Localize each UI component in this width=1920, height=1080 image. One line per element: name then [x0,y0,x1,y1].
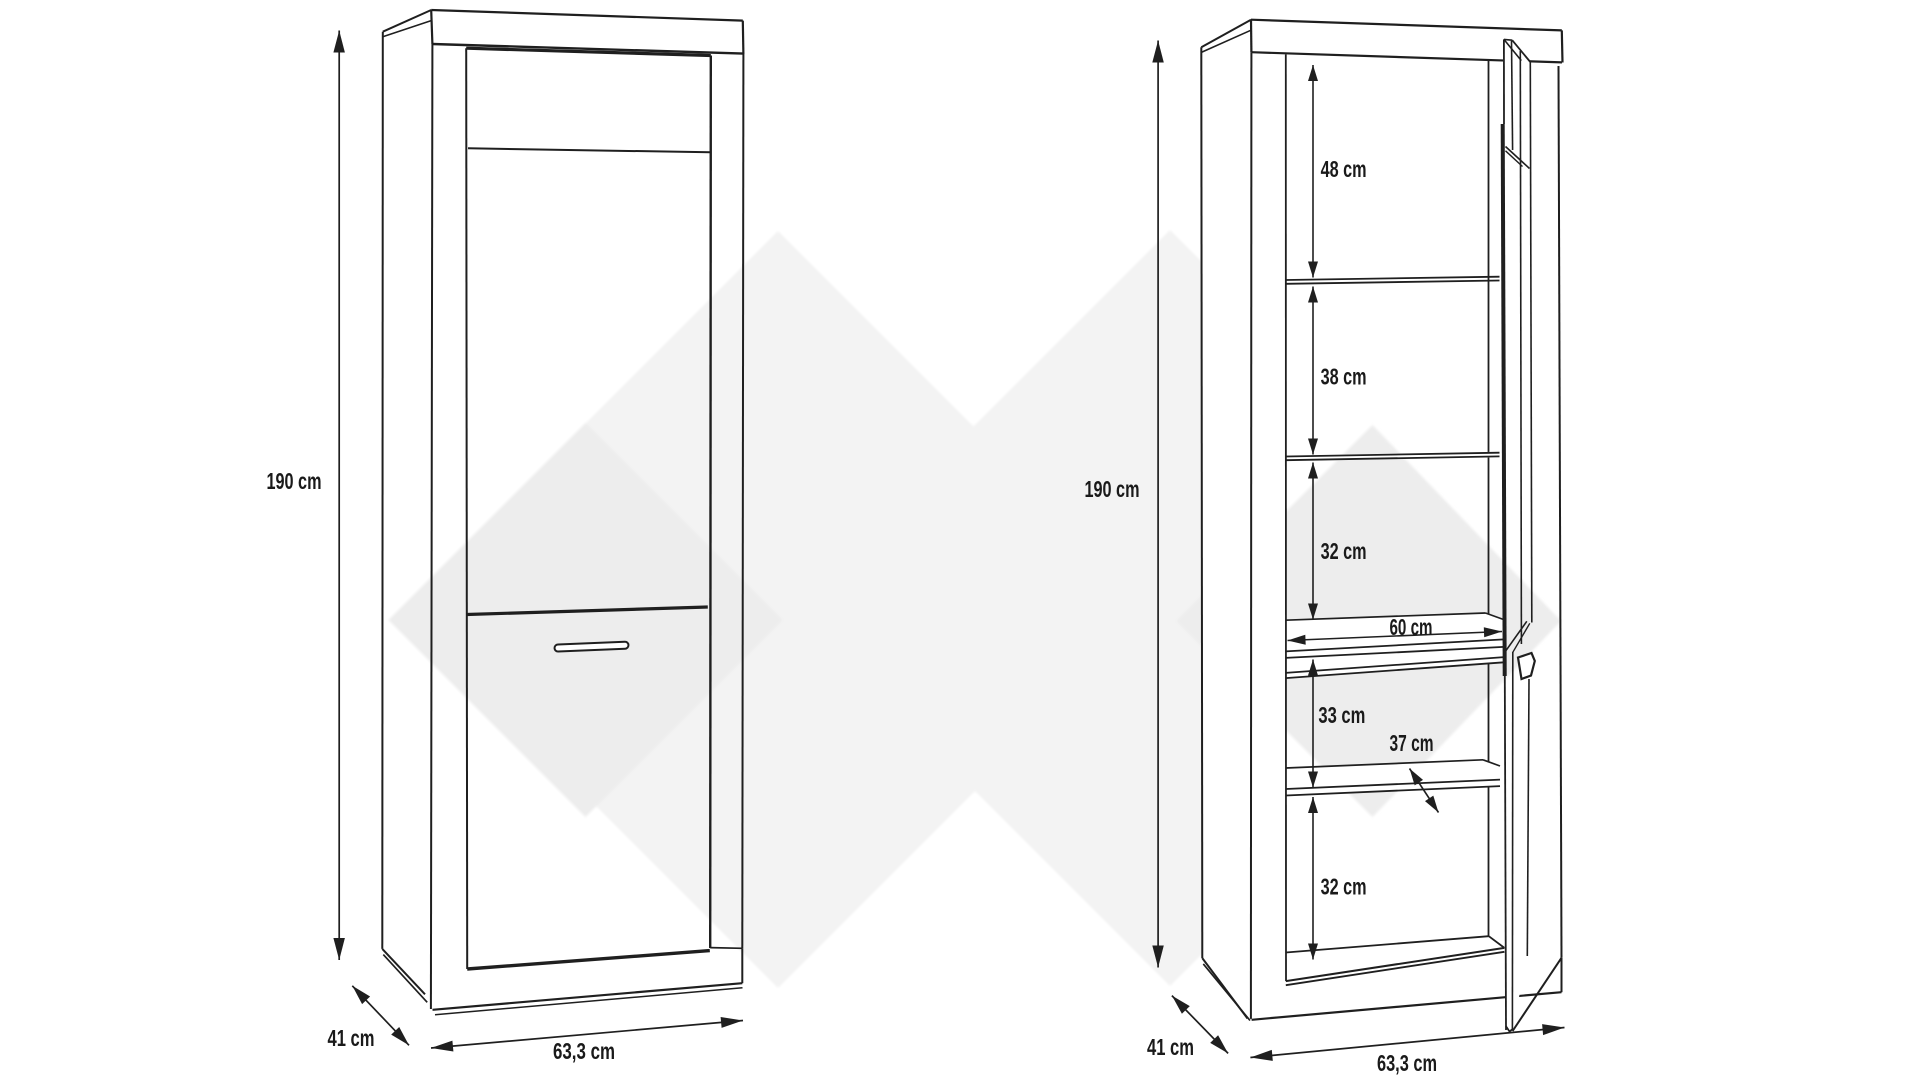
svg-text:32 cm: 32 cm [1321,538,1367,564]
svg-text:33 cm: 33 cm [1318,702,1365,728]
svg-text:63,3 cm: 63,3 cm [553,1038,615,1064]
svg-text:60 cm: 60 cm [1390,614,1433,640]
svg-text:190 cm: 190 cm [1085,476,1140,502]
svg-text:37 cm: 37 cm [1390,730,1434,756]
svg-text:190 cm: 190 cm [267,468,322,494]
svg-text:63,3 cm: 63,3 cm [1377,1050,1437,1076]
svg-text:32 cm: 32 cm [1321,874,1367,900]
svg-text:38 cm: 38 cm [1321,364,1367,390]
svg-text:48 cm: 48 cm [1321,156,1367,182]
svg-text:41 cm: 41 cm [328,1025,375,1051]
svg-text:41 cm: 41 cm [1147,1034,1194,1060]
